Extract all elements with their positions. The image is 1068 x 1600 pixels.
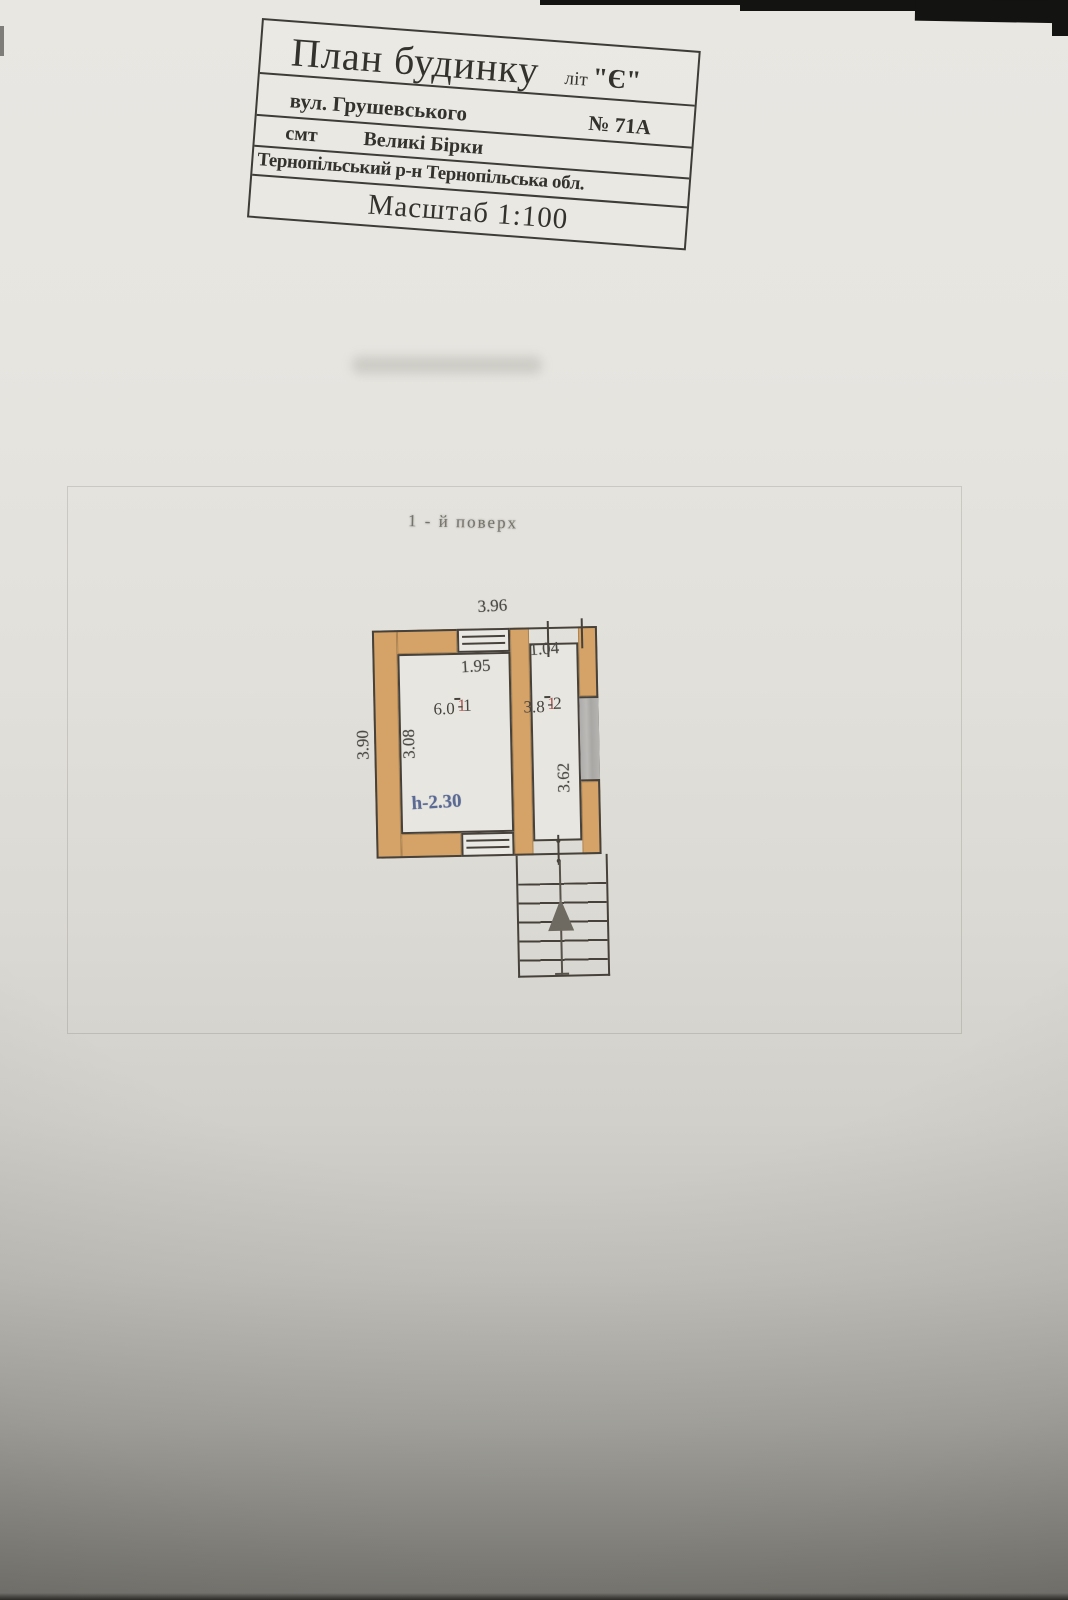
room-1-2-label: 1-2 3.8: [523, 695, 565, 696]
room-1-2-outline: [529, 642, 582, 841]
window-glazing-line: [462, 635, 505, 638]
floor-label: 1 - й поверх: [408, 511, 588, 535]
house-number: № 71А: [588, 111, 652, 141]
window-glazing-line: [462, 642, 505, 645]
paper-bottom-edge: [0, 1593, 1068, 1600]
settlement-type: смт: [285, 122, 319, 147]
dim-room1-height: 3.08: [399, 721, 420, 767]
title-block: План будинку літ "Є" вул. Грушевського №…: [247, 18, 701, 250]
window-symbol-top: [457, 628, 510, 653]
letter-value: "Є": [592, 62, 642, 96]
letter-label: літ "Є": [564, 62, 642, 98]
ceiling-height-note: h-2.30: [411, 789, 492, 815]
photo-background-edge: [540, 0, 750, 5]
window-glazing-line: [466, 846, 509, 849]
floor-plan: 3.96 1.95 1.04 3.90 3.08 3.62 1-1 6.0 1-…: [366, 611, 674, 1017]
room-1-2-number: 1-2: [544, 695, 550, 698]
staircase: [516, 854, 611, 978]
dimension-tick: [581, 618, 584, 648]
dim-room2-height: 3.62: [554, 755, 575, 801]
window-glazing-line: [466, 839, 509, 842]
ink-bleed-smudge: [352, 356, 542, 374]
dim-room2-width: 1.04: [521, 637, 568, 660]
dim-top-width: 3.96: [469, 595, 516, 618]
photo-background-corner: [1052, 0, 1068, 36]
room-1-1-area: 6.0: [433, 697, 455, 719]
photo-background-corner: [915, 0, 1068, 23]
window-symbol-bottom: [461, 832, 514, 857]
room-1-1-number: 1-1: [454, 697, 460, 700]
room-1-1-label: 1-1 6.0: [433, 697, 475, 698]
settlement-name: Великі Бірки: [363, 128, 484, 160]
dim-room1-width: 1.95: [452, 655, 499, 678]
dim-outer-height: 3.90: [353, 722, 374, 768]
room-1-2-area: 3.8: [523, 695, 545, 717]
photo-background-edge: [0, 26, 4, 56]
stair-arrow-base-tick: [555, 973, 569, 975]
window-symbol-right: [579, 696, 600, 781]
stair-direction-arrow-icon: [548, 899, 575, 932]
